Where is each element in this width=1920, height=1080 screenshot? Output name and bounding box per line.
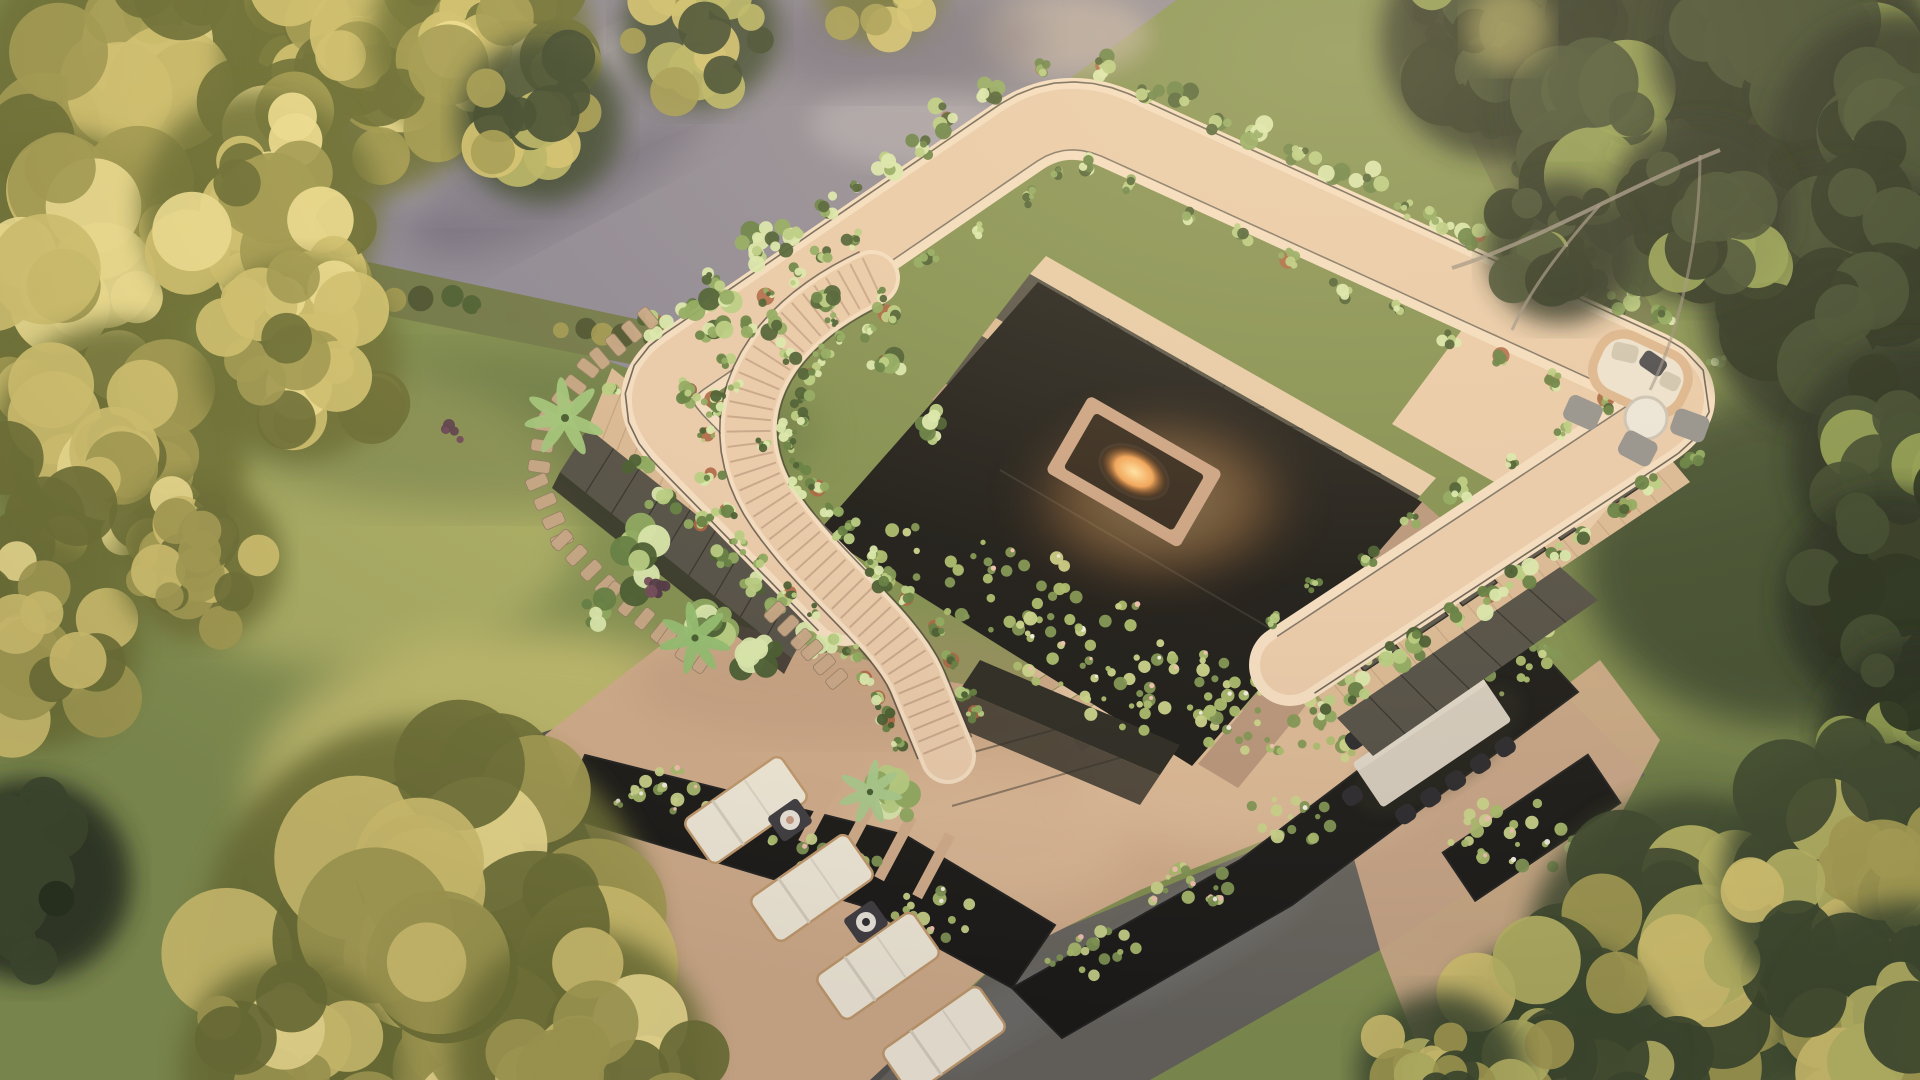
sunlight-overlay: [0, 0, 1920, 1080]
aerial-render: Aerial architectural rendering of a curv…: [0, 0, 1920, 1080]
scene-canvas: Aerial architectural rendering of a curv…: [0, 0, 1920, 1080]
